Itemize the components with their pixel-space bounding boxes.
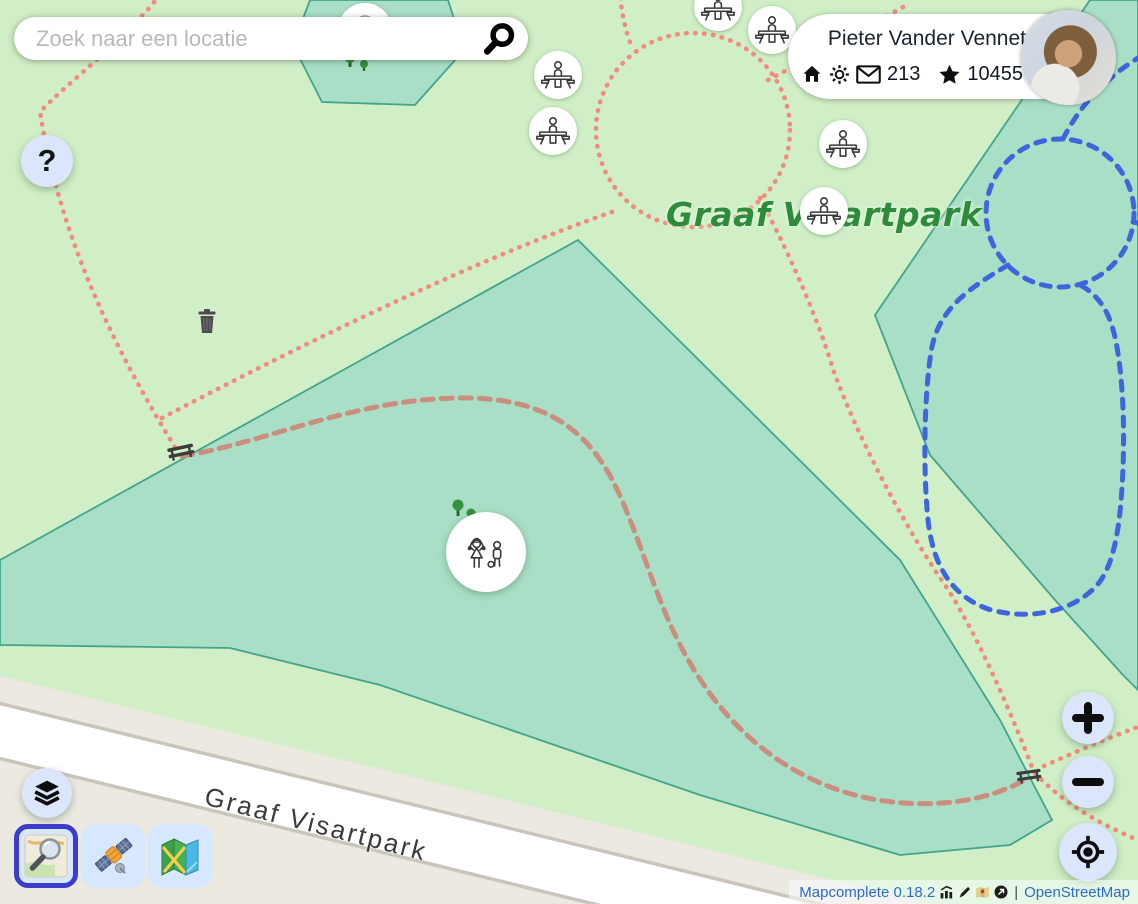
basemap-switcher bbox=[14, 824, 212, 888]
basemap-option-osm-carto[interactable] bbox=[14, 824, 78, 888]
picnic-table-icon bbox=[826, 127, 860, 161]
settings-gear-icon[interactable] bbox=[829, 64, 850, 85]
statistics-icon[interactable] bbox=[939, 885, 954, 899]
star-icon bbox=[938, 63, 961, 86]
folded-map-icon bbox=[158, 834, 202, 878]
mapillary-map-icon[interactable] bbox=[975, 886, 990, 899]
home-icon[interactable] bbox=[801, 63, 823, 85]
dark-badge-icon[interactable] bbox=[994, 885, 1008, 899]
minus-icon bbox=[1072, 766, 1104, 798]
bench-icon bbox=[164, 440, 197, 464]
mapcomplete-app: Graaf Visartpark Graaf Visartpark bbox=[0, 0, 1138, 904]
picnic-table-icon bbox=[541, 58, 575, 92]
attribution-bar: Mapcomplete 0.18.2 | OpenStreetMap bbox=[789, 880, 1138, 904]
layers-button[interactable] bbox=[22, 768, 72, 818]
bench-icon bbox=[1014, 766, 1044, 787]
help-label: ? bbox=[38, 143, 57, 179]
zoom-in-button[interactable] bbox=[1062, 692, 1114, 744]
changeset-count: 10455 bbox=[967, 63, 1023, 86]
bench-marker-1[interactable] bbox=[166, 443, 196, 461]
picnic-table-marker[interactable] bbox=[800, 187, 848, 235]
attribution-separator: | bbox=[1014, 884, 1018, 901]
search-bar bbox=[14, 17, 528, 60]
user-name: Pieter Vander Vennet bbox=[828, 27, 1026, 51]
zoom-out-button[interactable] bbox=[1062, 756, 1114, 808]
unread-messages-count[interactable]: 213 bbox=[887, 63, 920, 86]
bench-marker-2[interactable] bbox=[1015, 768, 1043, 785]
picnic-table-marker[interactable] bbox=[819, 120, 867, 168]
picnic-table-icon bbox=[536, 114, 570, 148]
satellite-icon bbox=[91, 834, 135, 878]
search-icon[interactable] bbox=[482, 22, 516, 56]
messages-envelope-icon[interactable] bbox=[856, 65, 881, 84]
app-version[interactable]: Mapcomplete 0.18.2 bbox=[799, 884, 935, 901]
geolocate-button[interactable] bbox=[1059, 823, 1117, 881]
edit-pencil-icon[interactable] bbox=[958, 886, 971, 899]
picnic-table-marker[interactable] bbox=[534, 51, 582, 99]
plus-icon bbox=[1072, 702, 1104, 734]
picnic-table-icon bbox=[701, 0, 735, 24]
search-input[interactable] bbox=[14, 26, 482, 52]
layers-icon bbox=[32, 779, 62, 807]
picnic-table-marker[interactable] bbox=[529, 107, 577, 155]
basemap-option-satellite[interactable] bbox=[81, 824, 145, 888]
user-avatar[interactable] bbox=[1021, 10, 1116, 105]
waste-basket-icon bbox=[195, 308, 219, 334]
osm-carto-icon bbox=[24, 834, 68, 878]
basemap-option-map[interactable] bbox=[148, 824, 212, 888]
playground-marker[interactable] bbox=[446, 512, 526, 592]
help-button[interactable]: ? bbox=[21, 135, 73, 187]
playground-icon bbox=[458, 524, 514, 580]
osm-link[interactable]: OpenStreetMap bbox=[1024, 884, 1130, 901]
waste-basket-marker[interactable] bbox=[195, 308, 219, 334]
crosshair-icon bbox=[1071, 835, 1105, 869]
picnic-table-icon bbox=[755, 13, 789, 47]
picnic-table-icon bbox=[807, 194, 841, 228]
